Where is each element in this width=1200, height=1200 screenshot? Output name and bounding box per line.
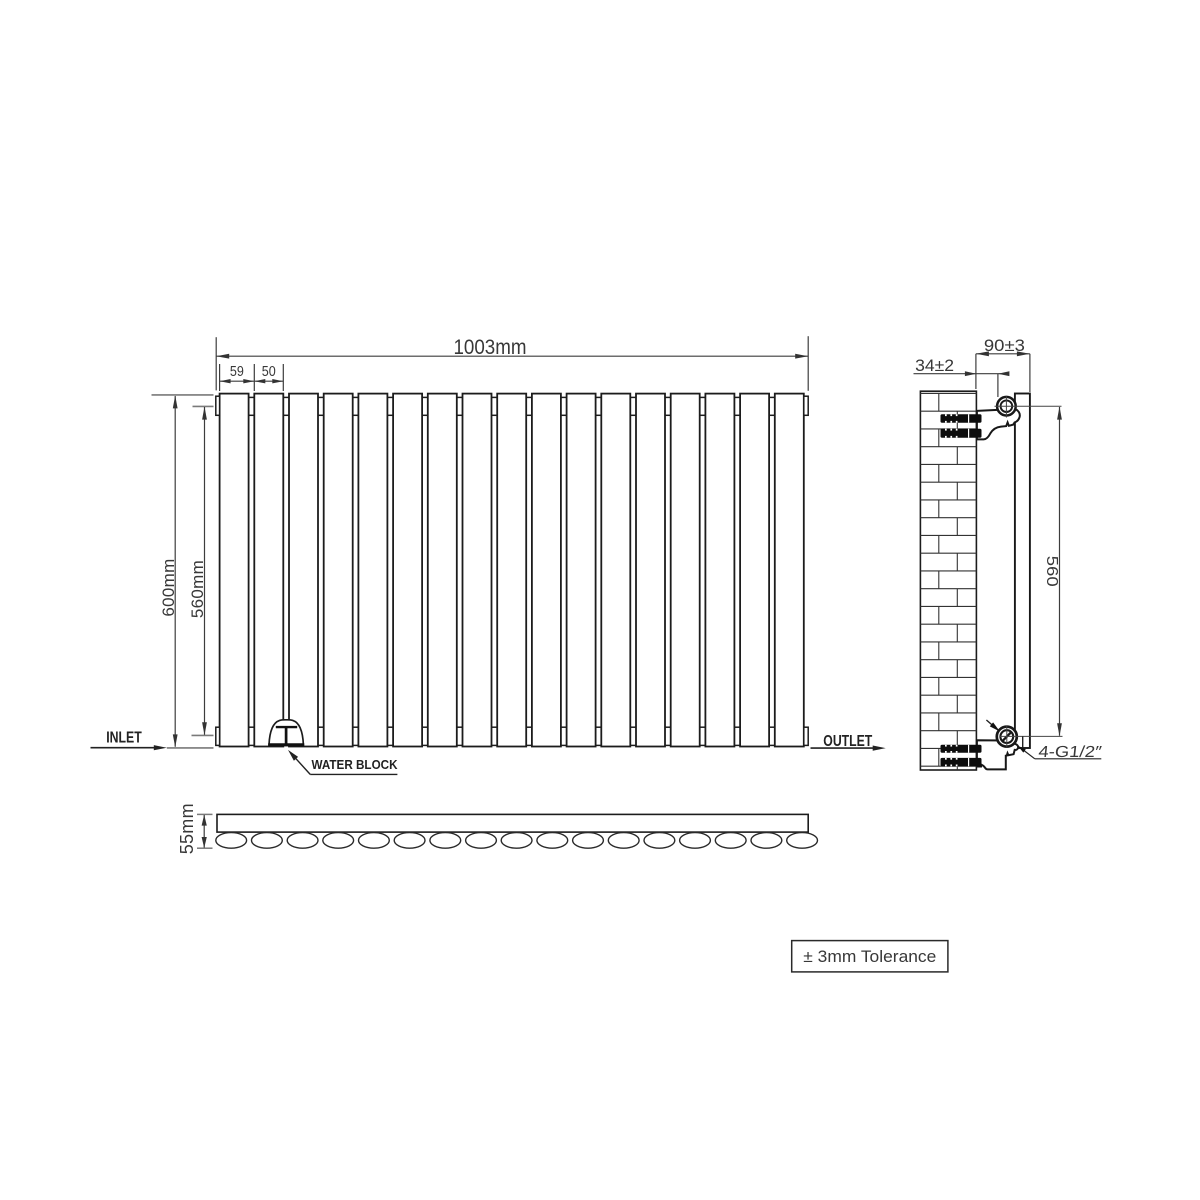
svg-text:59: 59	[230, 364, 244, 380]
svg-text:600mm: 600mm	[159, 558, 178, 616]
svg-text:1003mm: 1003mm	[454, 336, 527, 359]
svg-text:90±3: 90±3	[984, 337, 1025, 355]
svg-text:34±2: 34±2	[915, 357, 954, 375]
svg-text:50: 50	[262, 364, 276, 380]
svg-text:INLET: INLET	[106, 729, 142, 746]
svg-text:560mm: 560mm	[188, 560, 207, 618]
svg-text:560: 560	[1043, 556, 1060, 587]
svg-text:55mm: 55mm	[177, 803, 197, 854]
svg-text:OUTLET: OUTLET	[823, 733, 872, 750]
svg-text:4-G1/2″: 4-G1/2″	[1038, 743, 1103, 761]
svg-text:± 3mm Tolerance: ± 3mm Tolerance	[803, 948, 936, 966]
svg-text:WATER BLOCK: WATER BLOCK	[312, 757, 399, 772]
